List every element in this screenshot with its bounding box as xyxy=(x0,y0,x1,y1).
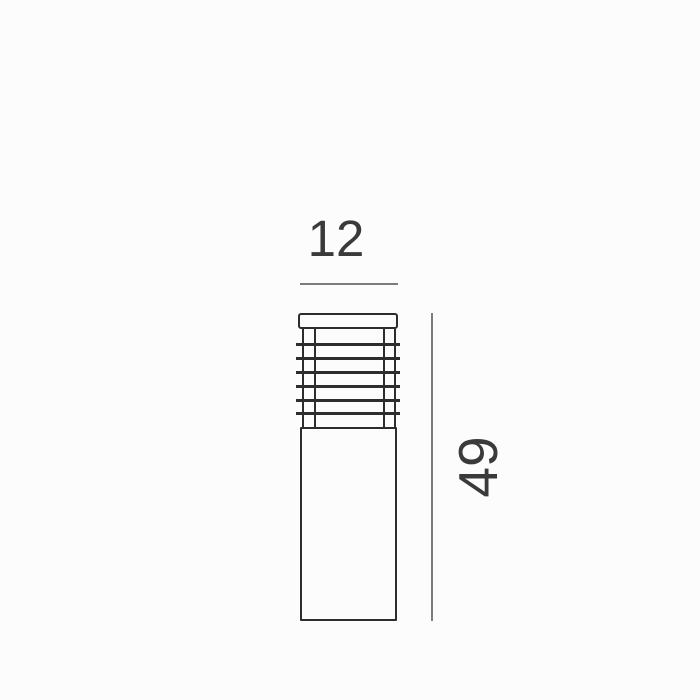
louver-slat xyxy=(296,371,400,374)
drawing-canvas: 12 49 xyxy=(0,0,700,700)
louver-slat xyxy=(296,385,400,388)
width-dimension-label: 12 xyxy=(286,212,386,264)
height-dimension-label: 49 xyxy=(448,407,508,527)
louver-slat xyxy=(296,357,400,360)
height-dimension-line xyxy=(431,313,433,621)
bollard-body xyxy=(300,427,397,621)
louver-slat xyxy=(296,399,400,402)
louver-slat xyxy=(296,343,400,346)
louver-slat xyxy=(296,412,400,415)
width-dimension-line xyxy=(300,283,398,285)
bollard-cap xyxy=(298,313,398,329)
